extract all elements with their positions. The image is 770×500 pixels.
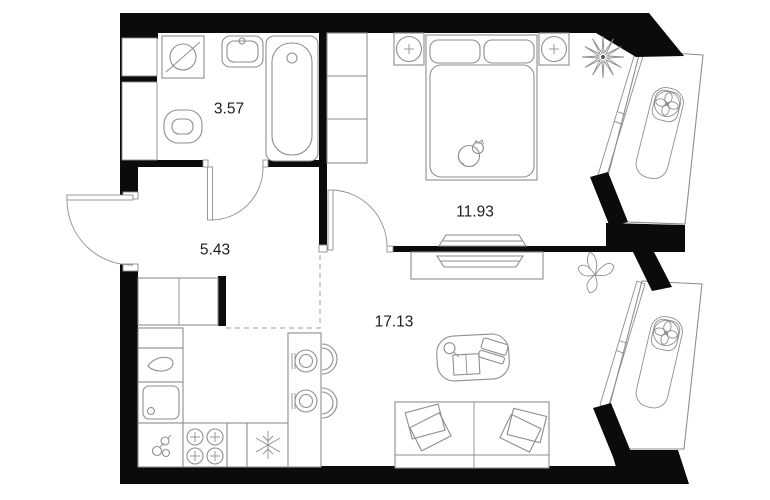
- bathtub-icon: [266, 36, 318, 161]
- sofa: [395, 402, 549, 468]
- double-bed: [426, 35, 537, 180]
- washing-machine-icon: [162, 36, 204, 78]
- stove-icon: [183, 423, 227, 467]
- toilet-icon: [164, 110, 202, 143]
- fridge-icon: [247, 423, 290, 467]
- dining-table: [288, 333, 321, 467]
- kitchen-sink-icon: [138, 382, 183, 423]
- wardrobe: [327, 33, 367, 163]
- hallway-area-label: 5.43: [200, 242, 230, 259]
- living-room-area-label: 17.13: [375, 314, 414, 331]
- tv-stand: [411, 252, 543, 279]
- coffee-table: [436, 333, 511, 382]
- kitchen-counter: [227, 423, 247, 467]
- hall-wardrobe: [138, 278, 218, 325]
- kitchen-counter: [138, 328, 183, 348]
- duct-shaft: [122, 38, 157, 76]
- duct-shaft: [122, 82, 157, 160]
- duct-shafts: [122, 38, 157, 160]
- nightstand-lamp-icon: [539, 33, 569, 65]
- bathroom-area-label: 3.57: [214, 101, 244, 118]
- kitchen-counter-drop: [138, 348, 183, 382]
- tv-icon: [439, 235, 526, 246]
- bathroom-sink-icon: [222, 36, 263, 67]
- produce-counter: [138, 423, 183, 467]
- tv-icon: [437, 256, 523, 267]
- bedroom-area-label: 11.93: [456, 204, 494, 221]
- floor-plan: 3.57 5.43: [0, 0, 770, 500]
- nightstand-lamp-icon: [394, 33, 424, 65]
